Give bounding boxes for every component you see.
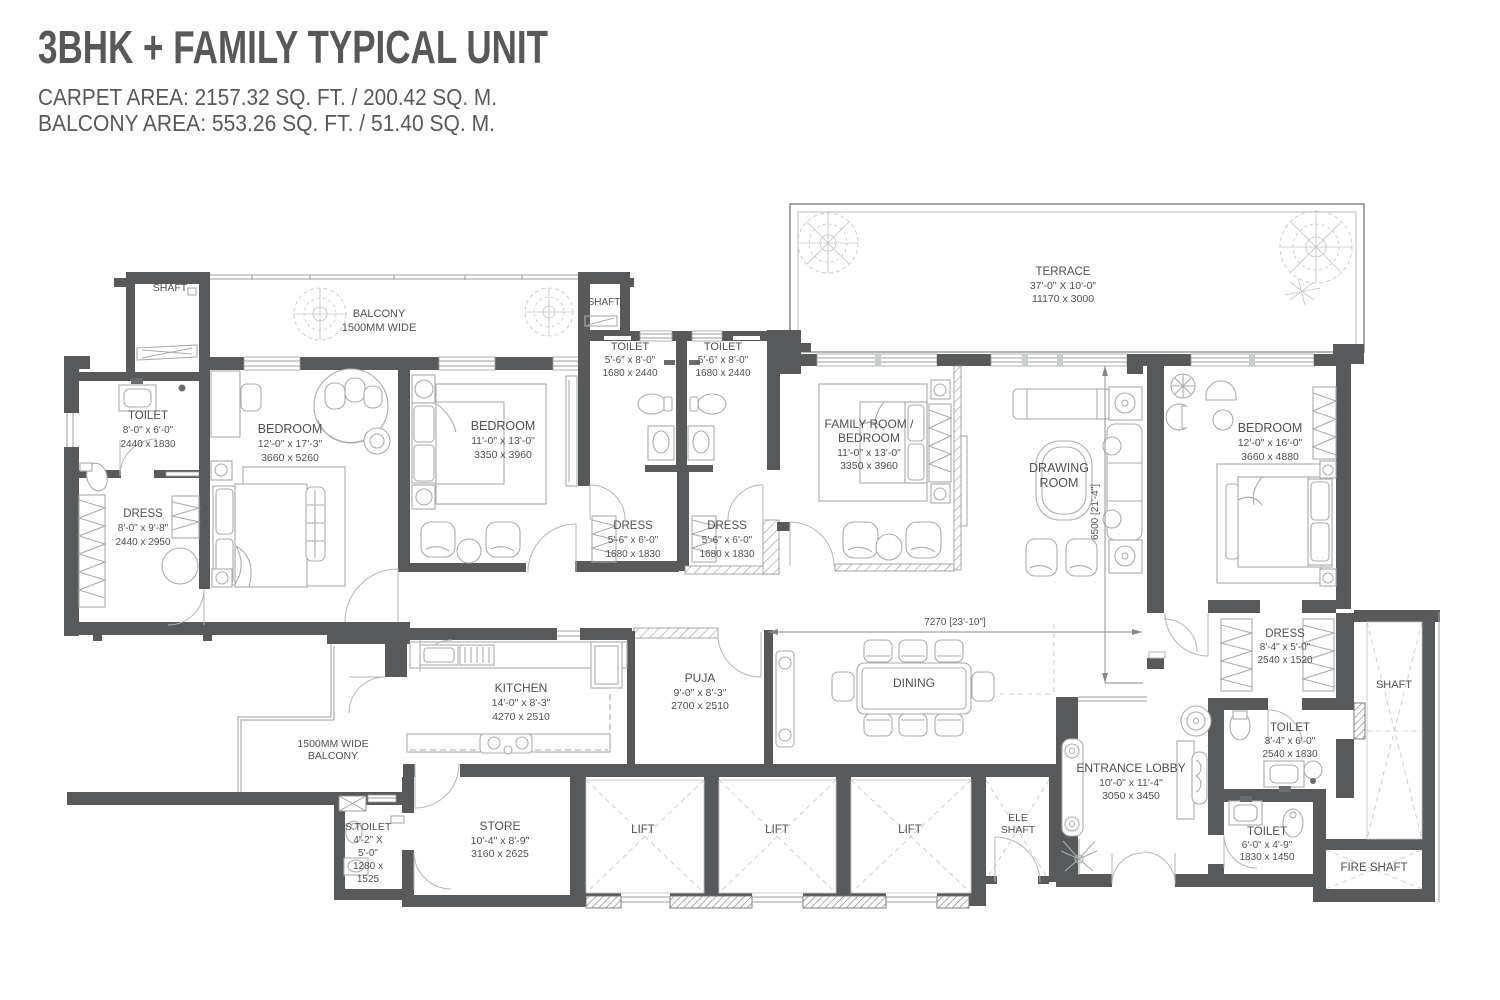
svg-text:1680 x 2440: 1680 x 2440 bbox=[602, 368, 657, 379]
svg-text:3BHK + FAMILY TYPICAL UNIT: 3BHK + FAMILY TYPICAL UNIT bbox=[38, 21, 548, 73]
svg-text:BALCONY: BALCONY bbox=[308, 750, 358, 762]
svg-text:12'-0" x 17'-3": 12'-0" x 17'-3" bbox=[258, 438, 323, 450]
svg-text:1680 x 1830: 1680 x 1830 bbox=[699, 549, 754, 560]
svg-text:12'-0" x 16'-0": 12'-0" x 16'-0" bbox=[1238, 437, 1303, 449]
svg-text:DRESS: DRESS bbox=[1265, 628, 1305, 640]
svg-text:DRAWING: DRAWING bbox=[1029, 461, 1089, 475]
svg-text:6500 [21'-4"]: 6500 [21'-4"] bbox=[1090, 484, 1101, 540]
svg-text:BEDROOM: BEDROOM bbox=[471, 419, 536, 433]
svg-text:STORE: STORE bbox=[479, 819, 520, 833]
svg-text:7270 [23'-10"]: 7270 [23'-10"] bbox=[924, 617, 986, 628]
svg-text:DRESS: DRESS bbox=[707, 520, 747, 532]
svg-text:PUJA: PUJA bbox=[685, 671, 716, 685]
svg-text:BALCONY: BALCONY bbox=[353, 308, 406, 320]
svg-text:DRESS: DRESS bbox=[123, 508, 163, 520]
svg-text:DINING: DINING bbox=[893, 676, 935, 690]
svg-text:TERRACE: TERRACE bbox=[1036, 266, 1091, 278]
svg-text:2440 x 2950: 2440 x 2950 bbox=[115, 537, 170, 548]
svg-text:5'-6" x 6'-0": 5'-6" x 6'-0" bbox=[702, 535, 753, 546]
svg-text:10'-4" x 8'-9": 10'-4" x 8'-9" bbox=[471, 835, 530, 847]
svg-text:5'-6" x 8'-0": 5'-6" x 8'-0" bbox=[698, 355, 749, 366]
svg-text:1525: 1525 bbox=[357, 874, 380, 885]
svg-text:CARPET AREA: 2157.32 SQ. FT. /: CARPET AREA: 2157.32 SQ. FT. / 200.42 SQ… bbox=[38, 84, 497, 110]
svg-text:3350 x 3960: 3350 x 3960 bbox=[840, 460, 898, 472]
svg-text:1500MM WIDE: 1500MM WIDE bbox=[297, 738, 368, 750]
svg-text:3160 x 2625: 3160 x 2625 bbox=[471, 848, 529, 860]
svg-text:LIFT: LIFT bbox=[765, 824, 789, 836]
svg-text:SHAFT: SHAFT bbox=[1376, 679, 1412, 691]
svg-text:FAMILY ROOM /: FAMILY ROOM / bbox=[825, 417, 915, 431]
svg-text:ROOM: ROOM bbox=[1040, 476, 1079, 490]
svg-text:DRESS: DRESS bbox=[613, 520, 653, 532]
svg-text:2540 x 1520: 2540 x 1520 bbox=[1257, 655, 1312, 666]
svg-text:5'-6" x 6'-0": 5'-6" x 6'-0" bbox=[608, 535, 659, 546]
svg-text:2440 x 1830: 2440 x 1830 bbox=[120, 439, 175, 450]
svg-text:37'-0" X 10'-0": 37'-0" X 10'-0" bbox=[1030, 280, 1097, 292]
svg-text:3660 x 5260: 3660 x 5260 bbox=[261, 452, 319, 464]
svg-text:5'-6" x 8'-0": 5'-6" x 8'-0" bbox=[605, 355, 656, 366]
svg-text:3660 x 4880: 3660 x 4880 bbox=[1241, 451, 1299, 463]
svg-text:5'-0": 5'-0" bbox=[358, 848, 378, 859]
svg-text:10'-0" x 11'-4": 10'-0" x 11'-4" bbox=[1099, 777, 1163, 789]
svg-text:8'-0" x 9'-8": 8'-0" x 9'-8" bbox=[118, 523, 169, 534]
svg-text:TOILET: TOILET bbox=[1270, 722, 1310, 734]
svg-text:1680 x 1830: 1680 x 1830 bbox=[605, 549, 660, 560]
svg-text:14'-0" x 8'-3": 14'-0" x 8'-3" bbox=[492, 697, 551, 709]
svg-text:SHAFT: SHAFT bbox=[153, 282, 188, 294]
svg-text:LIFT: LIFT bbox=[898, 824, 922, 836]
svg-text:4270 x 2510: 4270 x 2510 bbox=[492, 711, 550, 723]
svg-text:ENTRANCE LOBBY: ENTRANCE LOBBY bbox=[1076, 761, 1185, 775]
svg-text:BEDROOM: BEDROOM bbox=[1238, 421, 1303, 435]
svg-text:4'-2" X: 4'-2" X bbox=[353, 835, 383, 846]
svg-text:3350 x 3960: 3350 x 3960 bbox=[474, 449, 532, 461]
svg-text:LIFT: LIFT bbox=[631, 824, 655, 836]
svg-text:11170 x 3000: 11170 x 3000 bbox=[1032, 293, 1094, 305]
svg-text:TOILET: TOILET bbox=[611, 341, 650, 353]
svg-text:1680 x 2440: 1680 x 2440 bbox=[695, 368, 750, 379]
svg-text:2700 x 2510: 2700 x 2510 bbox=[671, 700, 729, 712]
svg-text:6'-0" x 4'-9": 6'-0" x 4'-9" bbox=[1242, 840, 1293, 851]
svg-text:1500MM WIDE: 1500MM WIDE bbox=[342, 322, 417, 334]
svg-text:SHAFT: SHAFT bbox=[588, 297, 621, 308]
svg-text:BALCONY AREA: 553.26 SQ. FT. /: BALCONY AREA: 553.26 SQ. FT. / 51.40 SQ.… bbox=[38, 110, 495, 136]
svg-text:SHAFT: SHAFT bbox=[1001, 824, 1036, 836]
svg-text:BEDROOM: BEDROOM bbox=[258, 422, 323, 436]
svg-text:TOILET: TOILET bbox=[1247, 826, 1287, 838]
svg-text:8'-4" x 6'-0": 8'-4" x 6'-0" bbox=[1265, 736, 1316, 747]
svg-text:11'-0" x 13'-0": 11'-0" x 13'-0" bbox=[837, 447, 901, 459]
svg-text:1280 x: 1280 x bbox=[353, 861, 383, 872]
svg-text:S.TOILET: S.TOILET bbox=[345, 821, 392, 833]
svg-text:8'-4" x 5'-0": 8'-4" x 5'-0" bbox=[1260, 642, 1311, 653]
svg-text:FIRE SHAFT: FIRE SHAFT bbox=[1340, 862, 1407, 874]
svg-text:2540 x 1830: 2540 x 1830 bbox=[1262, 749, 1317, 760]
svg-text:3050 x 3450: 3050 x 3450 bbox=[1102, 790, 1160, 802]
svg-text:TOILET: TOILET bbox=[704, 341, 743, 353]
svg-text:11'-0" x 13'-0": 11'-0" x 13'-0" bbox=[471, 435, 535, 447]
svg-text:ELE: ELE bbox=[1008, 812, 1028, 824]
svg-text:KITCHEN: KITCHEN bbox=[495, 681, 548, 695]
svg-text:BEDROOM: BEDROOM bbox=[838, 431, 900, 445]
svg-text:1830 x 1450: 1830 x 1450 bbox=[1239, 852, 1294, 863]
svg-text:TOILET: TOILET bbox=[128, 410, 168, 422]
svg-text:9'-0" x 8'-3": 9'-0" x 8'-3" bbox=[674, 687, 727, 699]
svg-text:8'-0" x 6'-0": 8'-0" x 6'-0" bbox=[123, 425, 174, 436]
